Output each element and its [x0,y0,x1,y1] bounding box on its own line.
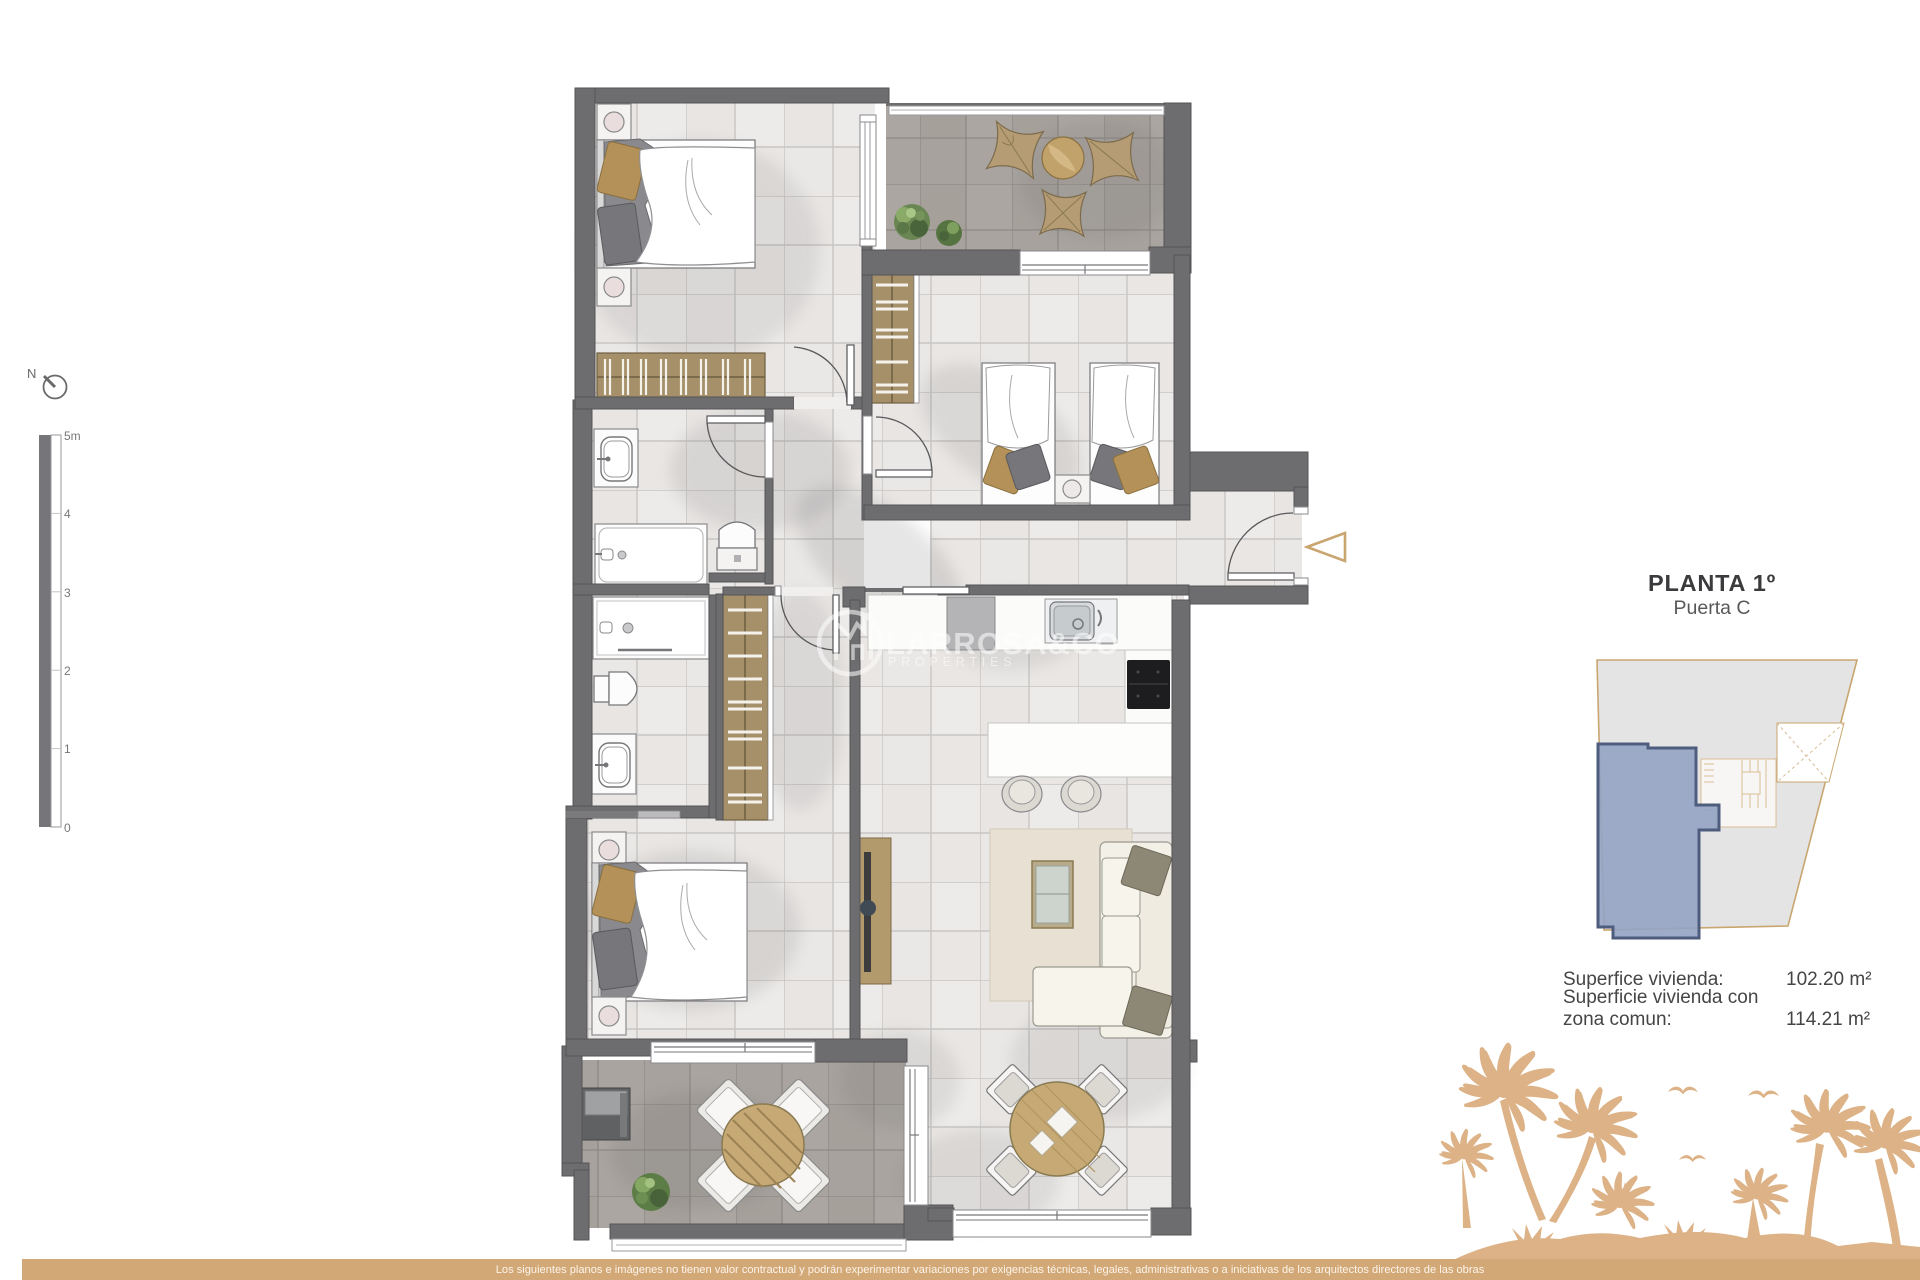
svg-text:114.21 m²: 114.21 m² [1786,1009,1870,1030]
svg-text:Superficie vivienda con: Superficie vivienda con [1563,987,1758,1008]
svg-text:Los siguientes planos e imágen: Los siguientes planos e imágenes no tien… [496,1264,1485,1276]
svg-text:zona comun:: zona comun: [1563,1009,1672,1030]
svg-text:2: 2 [64,664,71,678]
svg-text:1: 1 [64,742,71,756]
svg-text:4: 4 [64,507,71,521]
svg-text:N: N [27,366,36,381]
svg-text:PROPERTIES: PROPERTIES [888,655,1016,669]
svg-text:PLANTA 1º: PLANTA 1º [1648,570,1776,596]
svg-text:102.20 m²: 102.20 m² [1786,969,1872,990]
svg-text:0: 0 [64,821,71,835]
svg-text:Puerta C: Puerta C [1674,597,1751,619]
svg-text:5m: 5m [64,429,81,443]
svg-text:3: 3 [64,586,71,600]
